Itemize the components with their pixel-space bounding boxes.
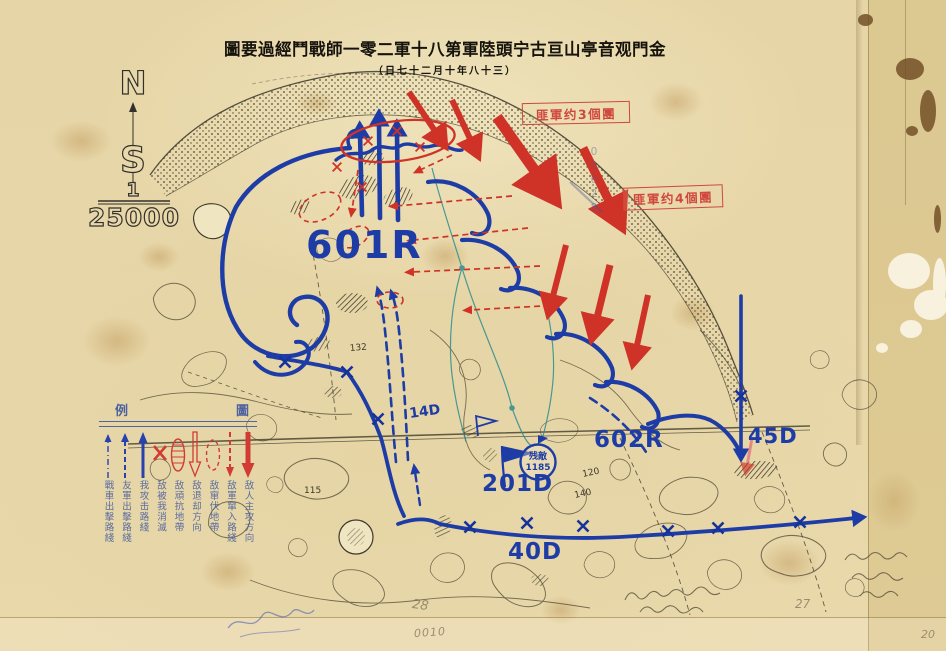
map-title-block: 圖要過經鬥戰師一零二軍十八第軍陸頭宁古亘山亭音观門金 （日七十二月十年八十三） <box>0 36 890 77</box>
legend-header-left: 例 <box>115 400 128 419</box>
remnant-label: 残敵 <box>529 450 548 462</box>
legend-item-our-attack-route: 我攻击路綫 <box>134 430 152 592</box>
scale-denominator: 25000 <box>88 203 180 232</box>
legend-item-enemy-destroyed: 敌被我消滅 <box>152 430 170 592</box>
compass-scale: N S 1 25000 <box>88 64 180 232</box>
enemy-pocket-areas <box>295 114 457 308</box>
enemy-strength-stamp-4: 匪軍约4個團 <box>623 184 724 210</box>
legend-header-right: 圖 <box>236 400 249 419</box>
pencil-note-0010: 0010 <box>414 625 447 640</box>
enemy-attack-arrows <box>409 92 752 466</box>
legend-header: 例 圖 <box>97 400 265 419</box>
legend-item-enemy-infiltration-route: 敌軍窜入路綫 <box>222 430 240 592</box>
height-132: 132 <box>349 343 367 354</box>
unit-label-40d: 40D <box>508 539 562 565</box>
pencil-note-20: 20 <box>921 628 935 641</box>
legend-item-friendly-sortie-route: 友軍出擊路綫 <box>117 430 135 592</box>
height-120: 120 <box>582 467 601 480</box>
pencil-note-28: 28 <box>411 597 429 614</box>
unit-label-602r: 602R <box>594 427 664 453</box>
map-date: （日七十二月十年八十三） <box>0 62 890 77</box>
legend-item-enemy-hiding-area: 敌窜伏地帶 <box>204 430 222 592</box>
blue-solid-arrow-up-icon <box>136 430 150 480</box>
red-hollow-arrow-down-icon <box>187 430 203 480</box>
red-x-icon <box>152 430 168 480</box>
unit-label-45d: 45D <box>748 424 798 448</box>
faint-serial-number: 00028 <box>588 146 600 216</box>
red-dashed-arrow-down-icon <box>223 430 237 480</box>
blue-dashdot-arrow-up-icon <box>101 430 115 480</box>
unit-label-14d: 14D <box>408 402 441 422</box>
legend-item-enemy-retreat-direction: 敌退却方向 <box>187 430 205 592</box>
compass-s: S <box>120 140 146 181</box>
legend: 例 圖 戰車出擊路綫 友軍出擊路綫 我攻击路綫 敌被我消滅 <box>97 400 265 592</box>
pencil-note-27: 27 <box>795 597 810 611</box>
height-140: 140 <box>574 488 593 501</box>
blue-dashed-arrow-up-icon <box>118 430 132 480</box>
legend-columns: 戰車出擊路綫 友軍出擊路綫 我攻击路綫 敌被我消滅 敌頑抗地帶 <box>99 430 265 592</box>
enemy-strength-stamp-3: 匪軍约3個團 <box>522 101 630 125</box>
red-dashed-ellipse-icon <box>204 430 222 480</box>
unit-label-201d: 201D <box>482 471 553 497</box>
legend-rule <box>99 421 257 427</box>
map-title: 圖要過經鬥戰師一零二軍十八第軍陸頭宁古亘山亭音观門金 <box>0 36 890 60</box>
legend-item-enemy-main-attack-direction: 敌人主攻方向 <box>239 430 257 592</box>
legend-item-tank-sortie-route: 戰車出擊路綫 <box>99 430 117 592</box>
legend-item-enemy-resistance-area: 敌頑抗地帶 <box>169 430 187 592</box>
scanned-battle-map: { "title": { "main": "圖要過經鬥戰師一零二軍十八第軍陸頭宁… <box>0 0 946 651</box>
red-hatched-ellipse-icon <box>169 430 187 480</box>
scale-numerator: 1 <box>126 179 139 201</box>
unit-label-601r: 601R <box>306 223 423 267</box>
north-arrow-icon <box>129 102 137 112</box>
red-solid-arrow-down-icon <box>239 430 257 480</box>
height-115: 115 <box>304 486 321 496</box>
